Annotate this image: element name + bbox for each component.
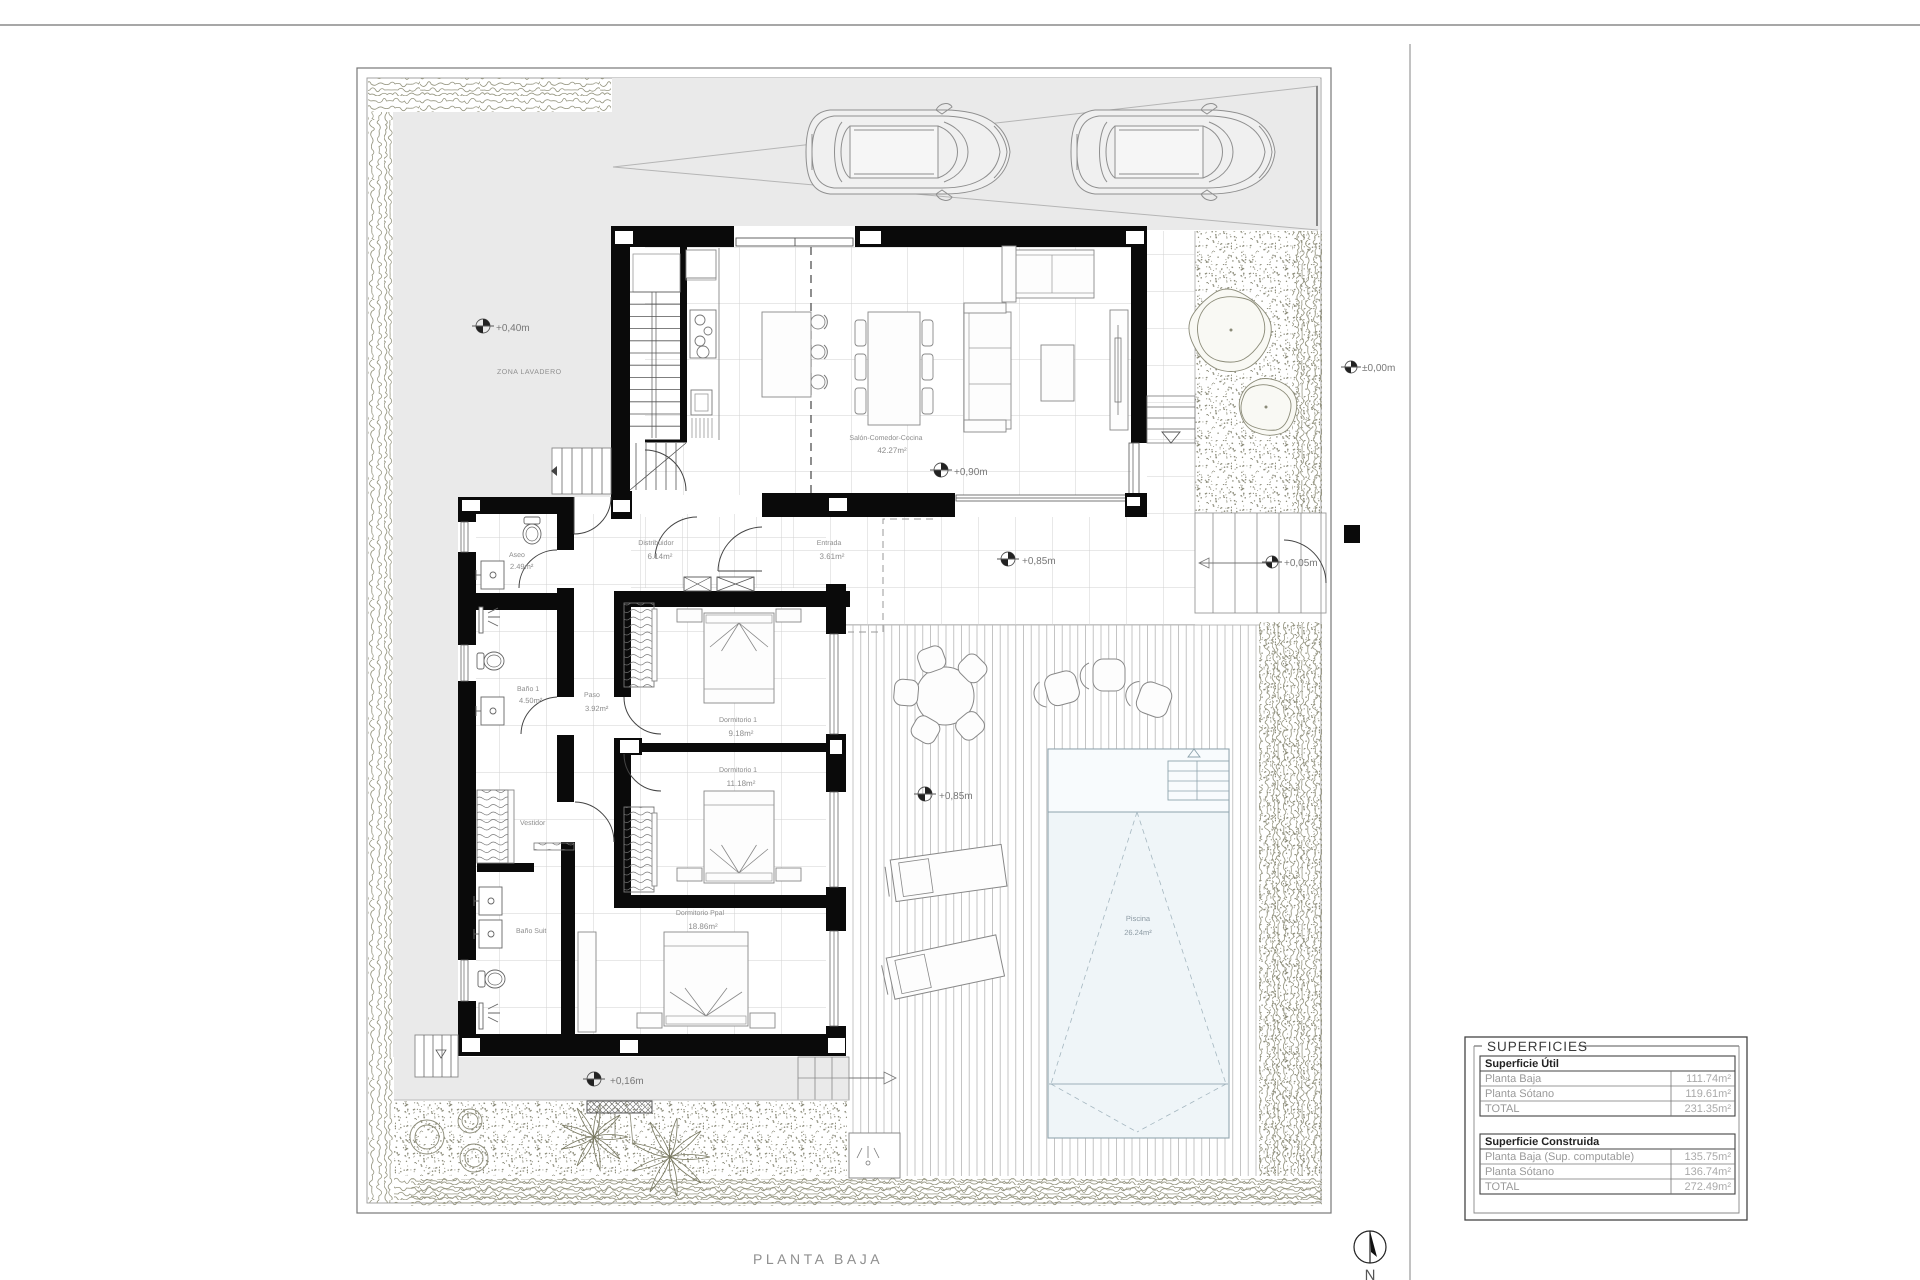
svg-text:SUPERFICIES: SUPERFICIES (1487, 1039, 1588, 1054)
svg-text:TOTAL: TOTAL (1485, 1103, 1519, 1115)
svg-text:+0,05m: +0,05m (1284, 558, 1318, 569)
svg-text:272.49m²: 272.49m² (1685, 1181, 1732, 1193)
svg-text:231.35m²: 231.35m² (1685, 1103, 1732, 1115)
svg-text:11.18m²: 11.18m² (727, 779, 756, 788)
svg-text:42.27m²: 42.27m² (877, 446, 907, 455)
svg-text:Paso: Paso (584, 692, 600, 699)
svg-text:Baño 1: Baño 1 (517, 685, 539, 693)
svg-text:+0,16m: +0,16m (610, 1076, 644, 1087)
svg-text:136.74m²: 136.74m² (1685, 1166, 1732, 1178)
svg-text:+0,90m: +0,90m (954, 467, 988, 478)
svg-text:Aseo: Aseo (509, 552, 525, 559)
svg-text:+0,85m: +0,85m (1022, 556, 1056, 567)
svg-text:4.50m²: 4.50m² (519, 696, 543, 705)
svg-text:3.92m²: 3.92m² (585, 704, 609, 713)
svg-text:Vestidor: Vestidor (520, 819, 546, 827)
svg-text:135.75m²: 135.75m² (1685, 1151, 1732, 1163)
svg-text:3.61m²: 3.61m² (820, 552, 845, 561)
svg-text:Dormitorio Ppal: Dormitorio Ppal (676, 909, 725, 917)
svg-text:6.14m²: 6.14m² (648, 552, 673, 561)
svg-text:9.18m²: 9.18m² (729, 729, 754, 738)
svg-text:Planta Sótano: Planta Sótano (1485, 1088, 1554, 1100)
svg-text:Superficie Construida: Superficie Construida (1485, 1136, 1600, 1148)
svg-text:Planta Sótano: Planta Sótano (1485, 1166, 1554, 1178)
svg-text:119.61m²: 119.61m² (1685, 1088, 1731, 1100)
svg-text:Salón-Comedor-Cocina: Salón-Comedor-Cocina (849, 434, 922, 442)
svg-text:PLANTA BAJA: PLANTA BAJA (753, 1251, 883, 1267)
svg-text:N: N (1365, 1267, 1376, 1280)
svg-text:Superficie Útil: Superficie Útil (1485, 1057, 1559, 1070)
svg-text:26.24m²: 26.24m² (1124, 928, 1152, 937)
svg-text:+0,85m: +0,85m (939, 791, 973, 802)
svg-text:Dormitorio 1: Dormitorio 1 (719, 766, 757, 774)
svg-text:TOTAL: TOTAL (1485, 1181, 1519, 1193)
svg-text:Entrada: Entrada (817, 539, 842, 547)
svg-text:Planta Baja (Sup. computable): Planta Baja (Sup. computable) (1485, 1151, 1634, 1163)
svg-text:+0,40m: +0,40m (496, 323, 530, 334)
svg-text:Dormitorio 1: Dormitorio 1 (719, 716, 757, 724)
svg-text:ZONA LAVADERO: ZONA LAVADERO (497, 369, 562, 376)
svg-text:±0,00m: ±0,00m (1362, 363, 1395, 374)
svg-text:Baño Suit: Baño Suit (516, 927, 546, 935)
svg-text:2.49m²: 2.49m² (510, 562, 534, 571)
svg-text:Distribuidor: Distribuidor (638, 539, 674, 547)
svg-text:111.74m²: 111.74m² (1686, 1073, 1731, 1085)
svg-text:Piscina: Piscina (1126, 914, 1151, 923)
svg-text:18.86m²: 18.86m² (688, 922, 718, 931)
svg-text:Planta Baja: Planta Baja (1485, 1073, 1542, 1085)
